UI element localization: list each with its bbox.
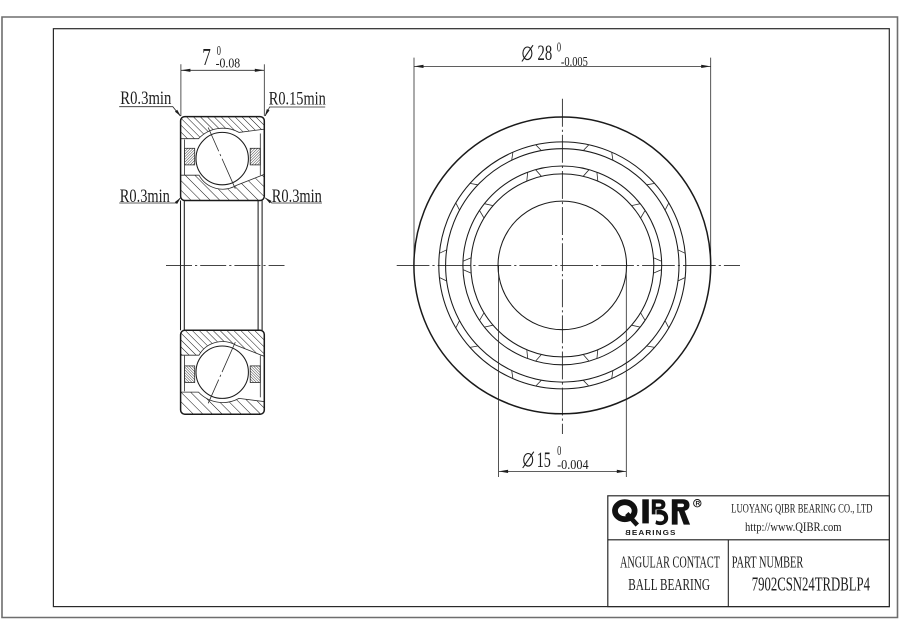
svg-text:EARINGS: EARINGS <box>632 528 677 537</box>
svg-text:R0.15min: R0.15min <box>269 89 326 110</box>
svg-text:R0.3min: R0.3min <box>120 186 170 207</box>
svg-text:-0.005: -0.005 <box>561 54 588 69</box>
svg-text:-0.08: -0.08 <box>216 56 241 71</box>
svg-text:http://www.QIBR.com: http://www.QIBR.com <box>745 520 842 534</box>
svg-text:15: 15 <box>537 447 551 472</box>
svg-text:ANGULAR CONTACT: ANGULAR CONTACT <box>620 552 720 571</box>
svg-text:0: 0 <box>557 40 561 55</box>
svg-text:R0.3min: R0.3min <box>120 88 171 109</box>
svg-text:BALL BEARING: BALL BEARING <box>628 575 710 594</box>
svg-text:7: 7 <box>202 44 211 71</box>
svg-text:LUOYANG QIBR BEARING CO., LTD: LUOYANG QIBR BEARING CO., LTD <box>731 501 872 515</box>
svg-text:28: 28 <box>538 40 553 65</box>
svg-text:-0.004: -0.004 <box>557 457 589 472</box>
svg-text:PART NUMBER: PART NUMBER <box>732 552 804 571</box>
svg-text:0: 0 <box>557 443 561 458</box>
svg-text:R0.3min: R0.3min <box>272 186 322 207</box>
svg-text:B: B <box>625 528 631 537</box>
svg-text:7902CSN24TRDBLP4: 7902CSN24TRDBLP4 <box>752 575 870 596</box>
svg-text:R: R <box>696 501 701 508</box>
